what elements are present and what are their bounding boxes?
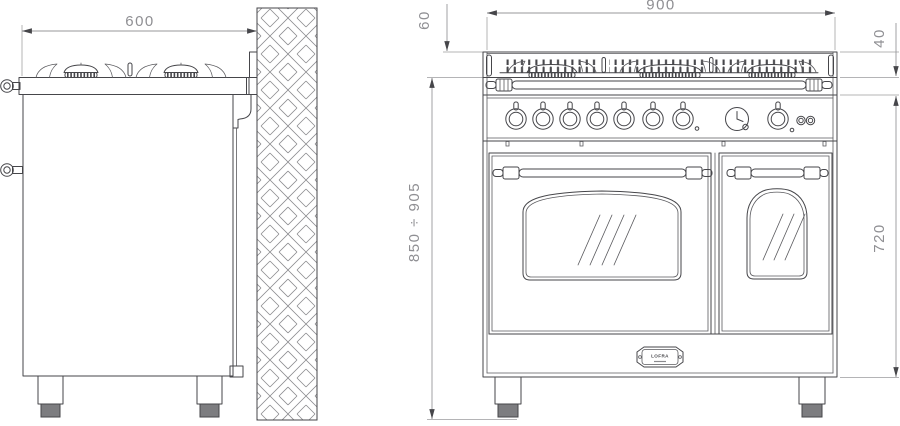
towel-rail-end xyxy=(1,80,20,93)
control-panel xyxy=(483,98,837,141)
dimension-height-range: 850 ÷ 905 xyxy=(406,78,517,420)
front-legs xyxy=(495,377,825,417)
dimension-body-720: 720 xyxy=(840,95,899,378)
ignition-buttons xyxy=(797,116,815,124)
adjustable-foot xyxy=(802,404,822,417)
indicator-light xyxy=(790,128,794,132)
main-oven-door xyxy=(489,153,712,334)
front-cooktop xyxy=(487,55,834,78)
adjustable-foot xyxy=(200,404,219,417)
indicator-light xyxy=(695,127,699,131)
burner-knob xyxy=(506,102,526,129)
burner-knob xyxy=(614,102,634,129)
hinge-mark xyxy=(580,142,583,147)
side-cooktop xyxy=(1,63,249,95)
adjustable-foot xyxy=(498,404,518,417)
grate-post xyxy=(128,63,132,76)
front-view: 900 60 40 850 ÷ 905 720 xyxy=(406,0,899,420)
dimension-width-900: 900 xyxy=(487,0,835,50)
hinge-mark xyxy=(823,142,826,147)
oven-doors xyxy=(489,142,832,335)
hinge-mark xyxy=(506,142,509,147)
oven-door-handle-profile xyxy=(1,164,23,177)
body-height-label: 720 xyxy=(871,223,888,253)
second-oven-door xyxy=(719,153,832,334)
side-body xyxy=(1,52,257,377)
width-label: 900 xyxy=(646,0,676,14)
front-towel-rail xyxy=(483,78,837,96)
wall-section xyxy=(257,8,317,420)
burner-knob xyxy=(587,102,607,129)
dimension-depth-600: 600 xyxy=(22,13,257,76)
burner-knob xyxy=(560,102,580,129)
backguard-label: 40 xyxy=(871,28,888,48)
rear-backguard-profile xyxy=(230,52,257,377)
second-oven-handle xyxy=(727,167,828,179)
adjustable-foot xyxy=(41,404,60,417)
front-unit-outline xyxy=(483,52,837,377)
side-legs xyxy=(38,376,222,417)
burner-knob xyxy=(643,102,663,129)
side-view: 600 xyxy=(1,8,317,420)
grate-prongs xyxy=(502,60,599,73)
oven-knob xyxy=(768,102,788,129)
range-cooker-drawing: 600 xyxy=(0,0,900,426)
grate-post xyxy=(710,58,714,73)
main-oven-window xyxy=(523,191,681,280)
height-range-label: 850 ÷ 905 xyxy=(406,182,423,262)
technical-drawing-page: 600 xyxy=(0,0,900,426)
timer-clock xyxy=(726,108,749,131)
dimension-offset-60: 60 xyxy=(416,4,488,52)
burner-knob xyxy=(533,102,553,129)
oven-knob xyxy=(673,102,693,129)
depth-label: 600 xyxy=(125,13,155,30)
glass-reflection xyxy=(578,215,636,265)
glass-reflection xyxy=(763,214,805,260)
burner-profile xyxy=(64,63,98,78)
hinge-mark xyxy=(722,142,725,147)
plinth-badge: LOFRA xyxy=(637,347,683,367)
offset-label: 60 xyxy=(416,10,433,30)
second-oven-window xyxy=(747,189,807,279)
burner-profile xyxy=(164,63,198,78)
dimension-backguard-40: 40 xyxy=(840,23,899,78)
grate-post xyxy=(602,58,606,73)
brand-badge-label: LOFRA xyxy=(651,354,669,359)
main-oven-handle xyxy=(493,167,712,179)
